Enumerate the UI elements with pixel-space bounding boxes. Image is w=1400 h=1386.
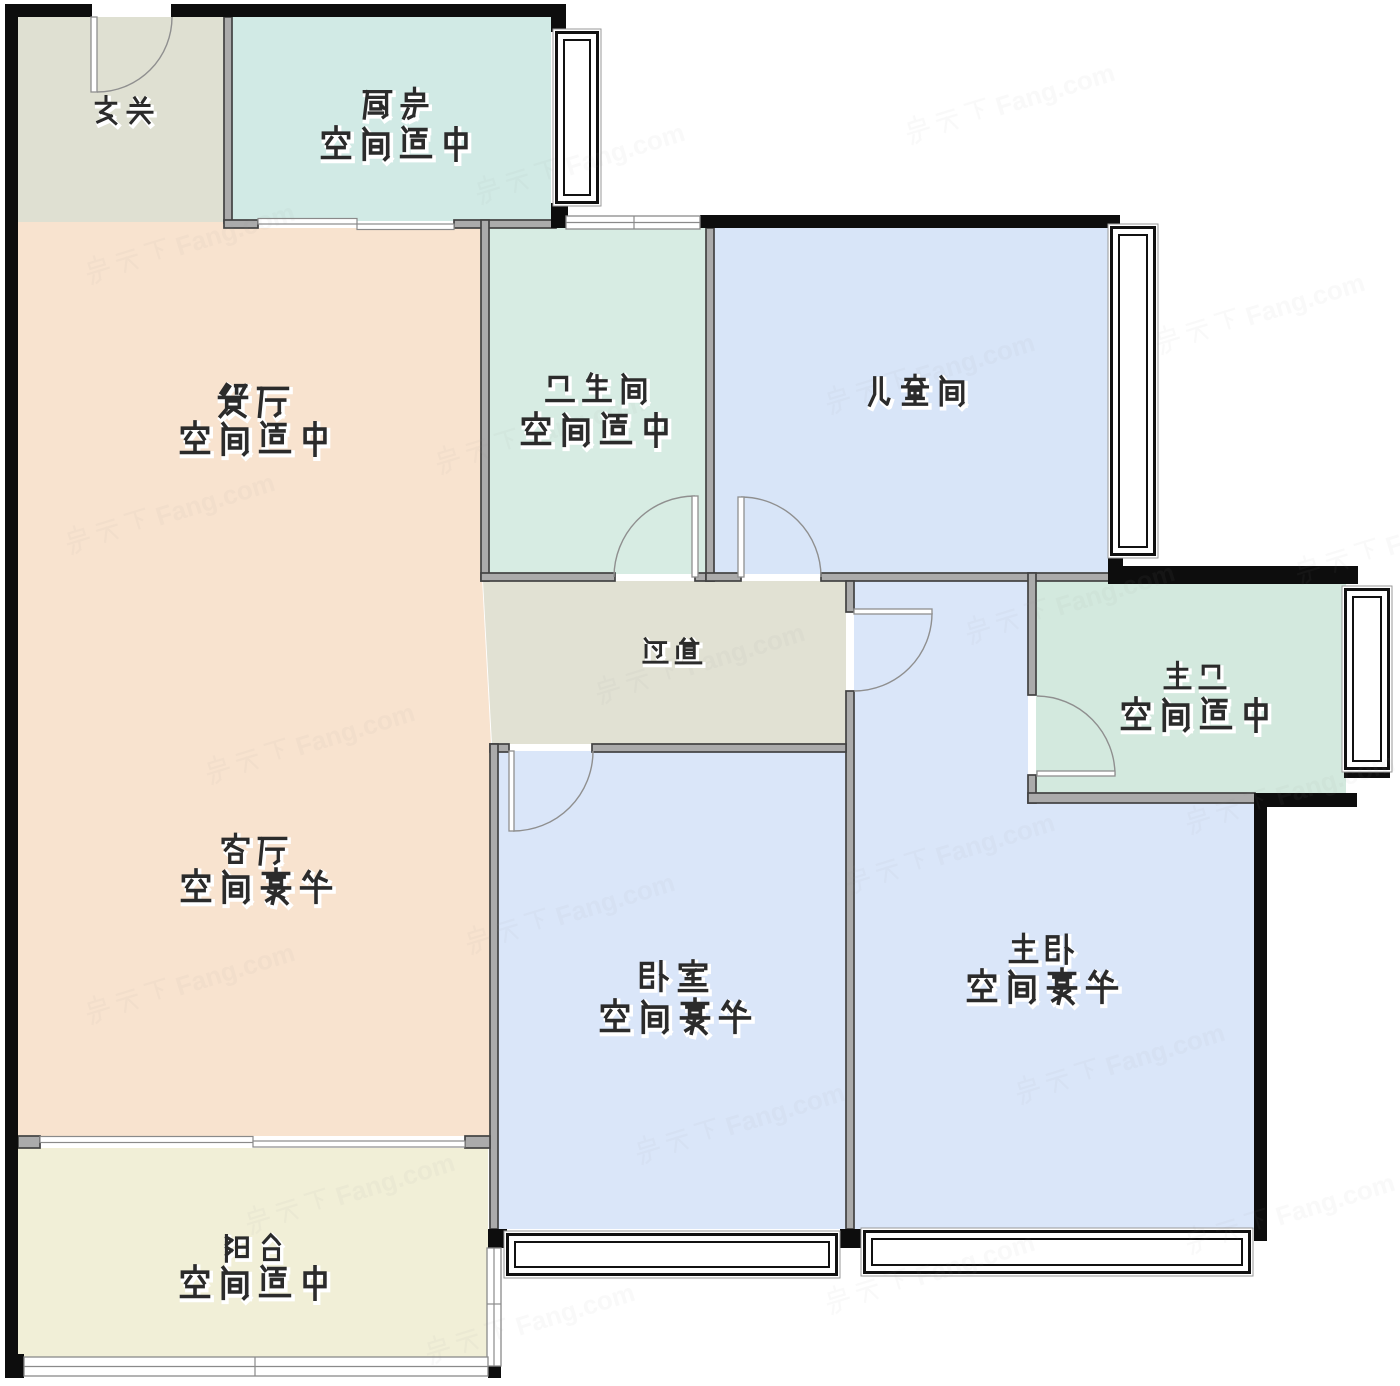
svg-text:Fang.com: Fang.com [992,57,1118,122]
svg-text:Fang.com: Fang.com [1242,267,1368,332]
svg-text:Fang.com: Fang.com [1272,1167,1398,1232]
svg-text:Fang.com: Fang.com [512,1277,638,1342]
svg-text:Fang.com: Fang.com [1382,497,1400,562]
